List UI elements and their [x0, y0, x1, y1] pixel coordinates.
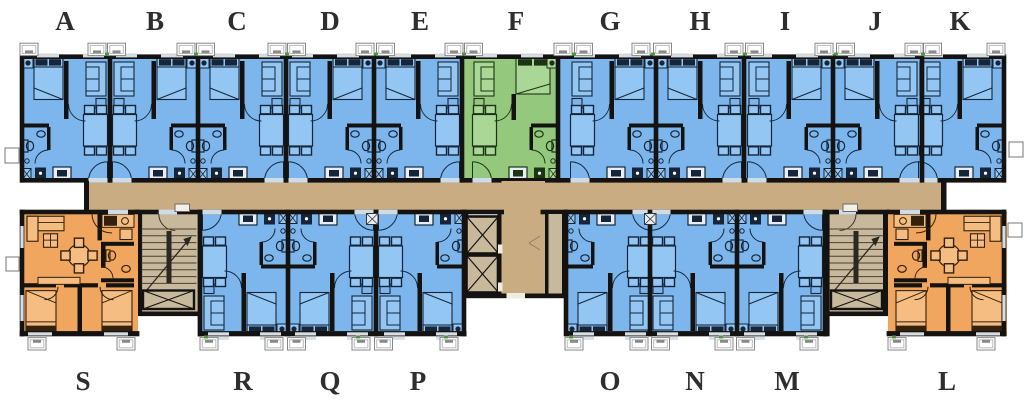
svg-text:S: S	[75, 366, 90, 396]
svg-text:N: N	[685, 366, 705, 396]
svg-text:J: J	[868, 6, 882, 36]
svg-text:R: R	[233, 366, 253, 396]
svg-text:D: D	[320, 6, 340, 36]
svg-text:L: L	[938, 366, 956, 396]
svg-text:B: B	[146, 6, 164, 36]
svg-text:F: F	[508, 6, 525, 36]
svg-text:M: M	[774, 366, 799, 396]
svg-text:O: O	[599, 366, 620, 396]
svg-text:C: C	[227, 6, 247, 36]
svg-text:H: H	[689, 6, 710, 36]
svg-text:Q: Q	[319, 366, 340, 396]
svg-text:K: K	[949, 6, 970, 36]
svg-text:P: P	[410, 366, 427, 396]
svg-text:G: G	[599, 6, 620, 36]
svg-text:E: E	[411, 6, 429, 36]
svg-text:A: A	[55, 6, 75, 36]
svg-text:I: I	[780, 6, 791, 36]
